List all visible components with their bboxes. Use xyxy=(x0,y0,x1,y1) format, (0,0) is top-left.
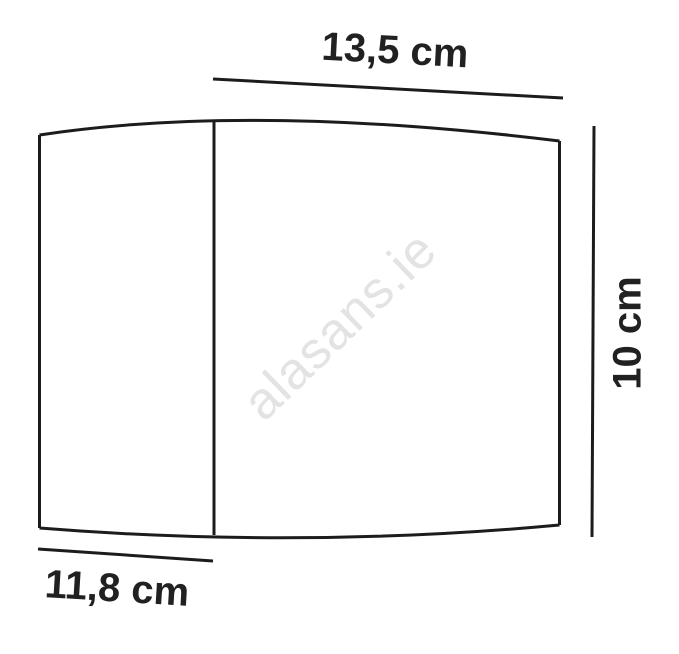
dimension-diagram: alasans.ie 13,5 cm 10 cm 11,8 cm xyxy=(0,0,679,654)
dimension-label-bottom-depth: 11,8 cm xyxy=(43,562,190,616)
dimension-label-top-width: 13,5 cm xyxy=(321,25,470,78)
shade-top-arc xyxy=(40,120,560,141)
dimension-line-bottom-depth xyxy=(38,549,213,561)
dimension-line-top-width xyxy=(213,79,563,98)
shade-bottom-arc xyxy=(40,525,560,538)
dimension-label-side-height: 10 cm xyxy=(606,276,651,389)
dimension-line-right-height xyxy=(592,126,594,537)
